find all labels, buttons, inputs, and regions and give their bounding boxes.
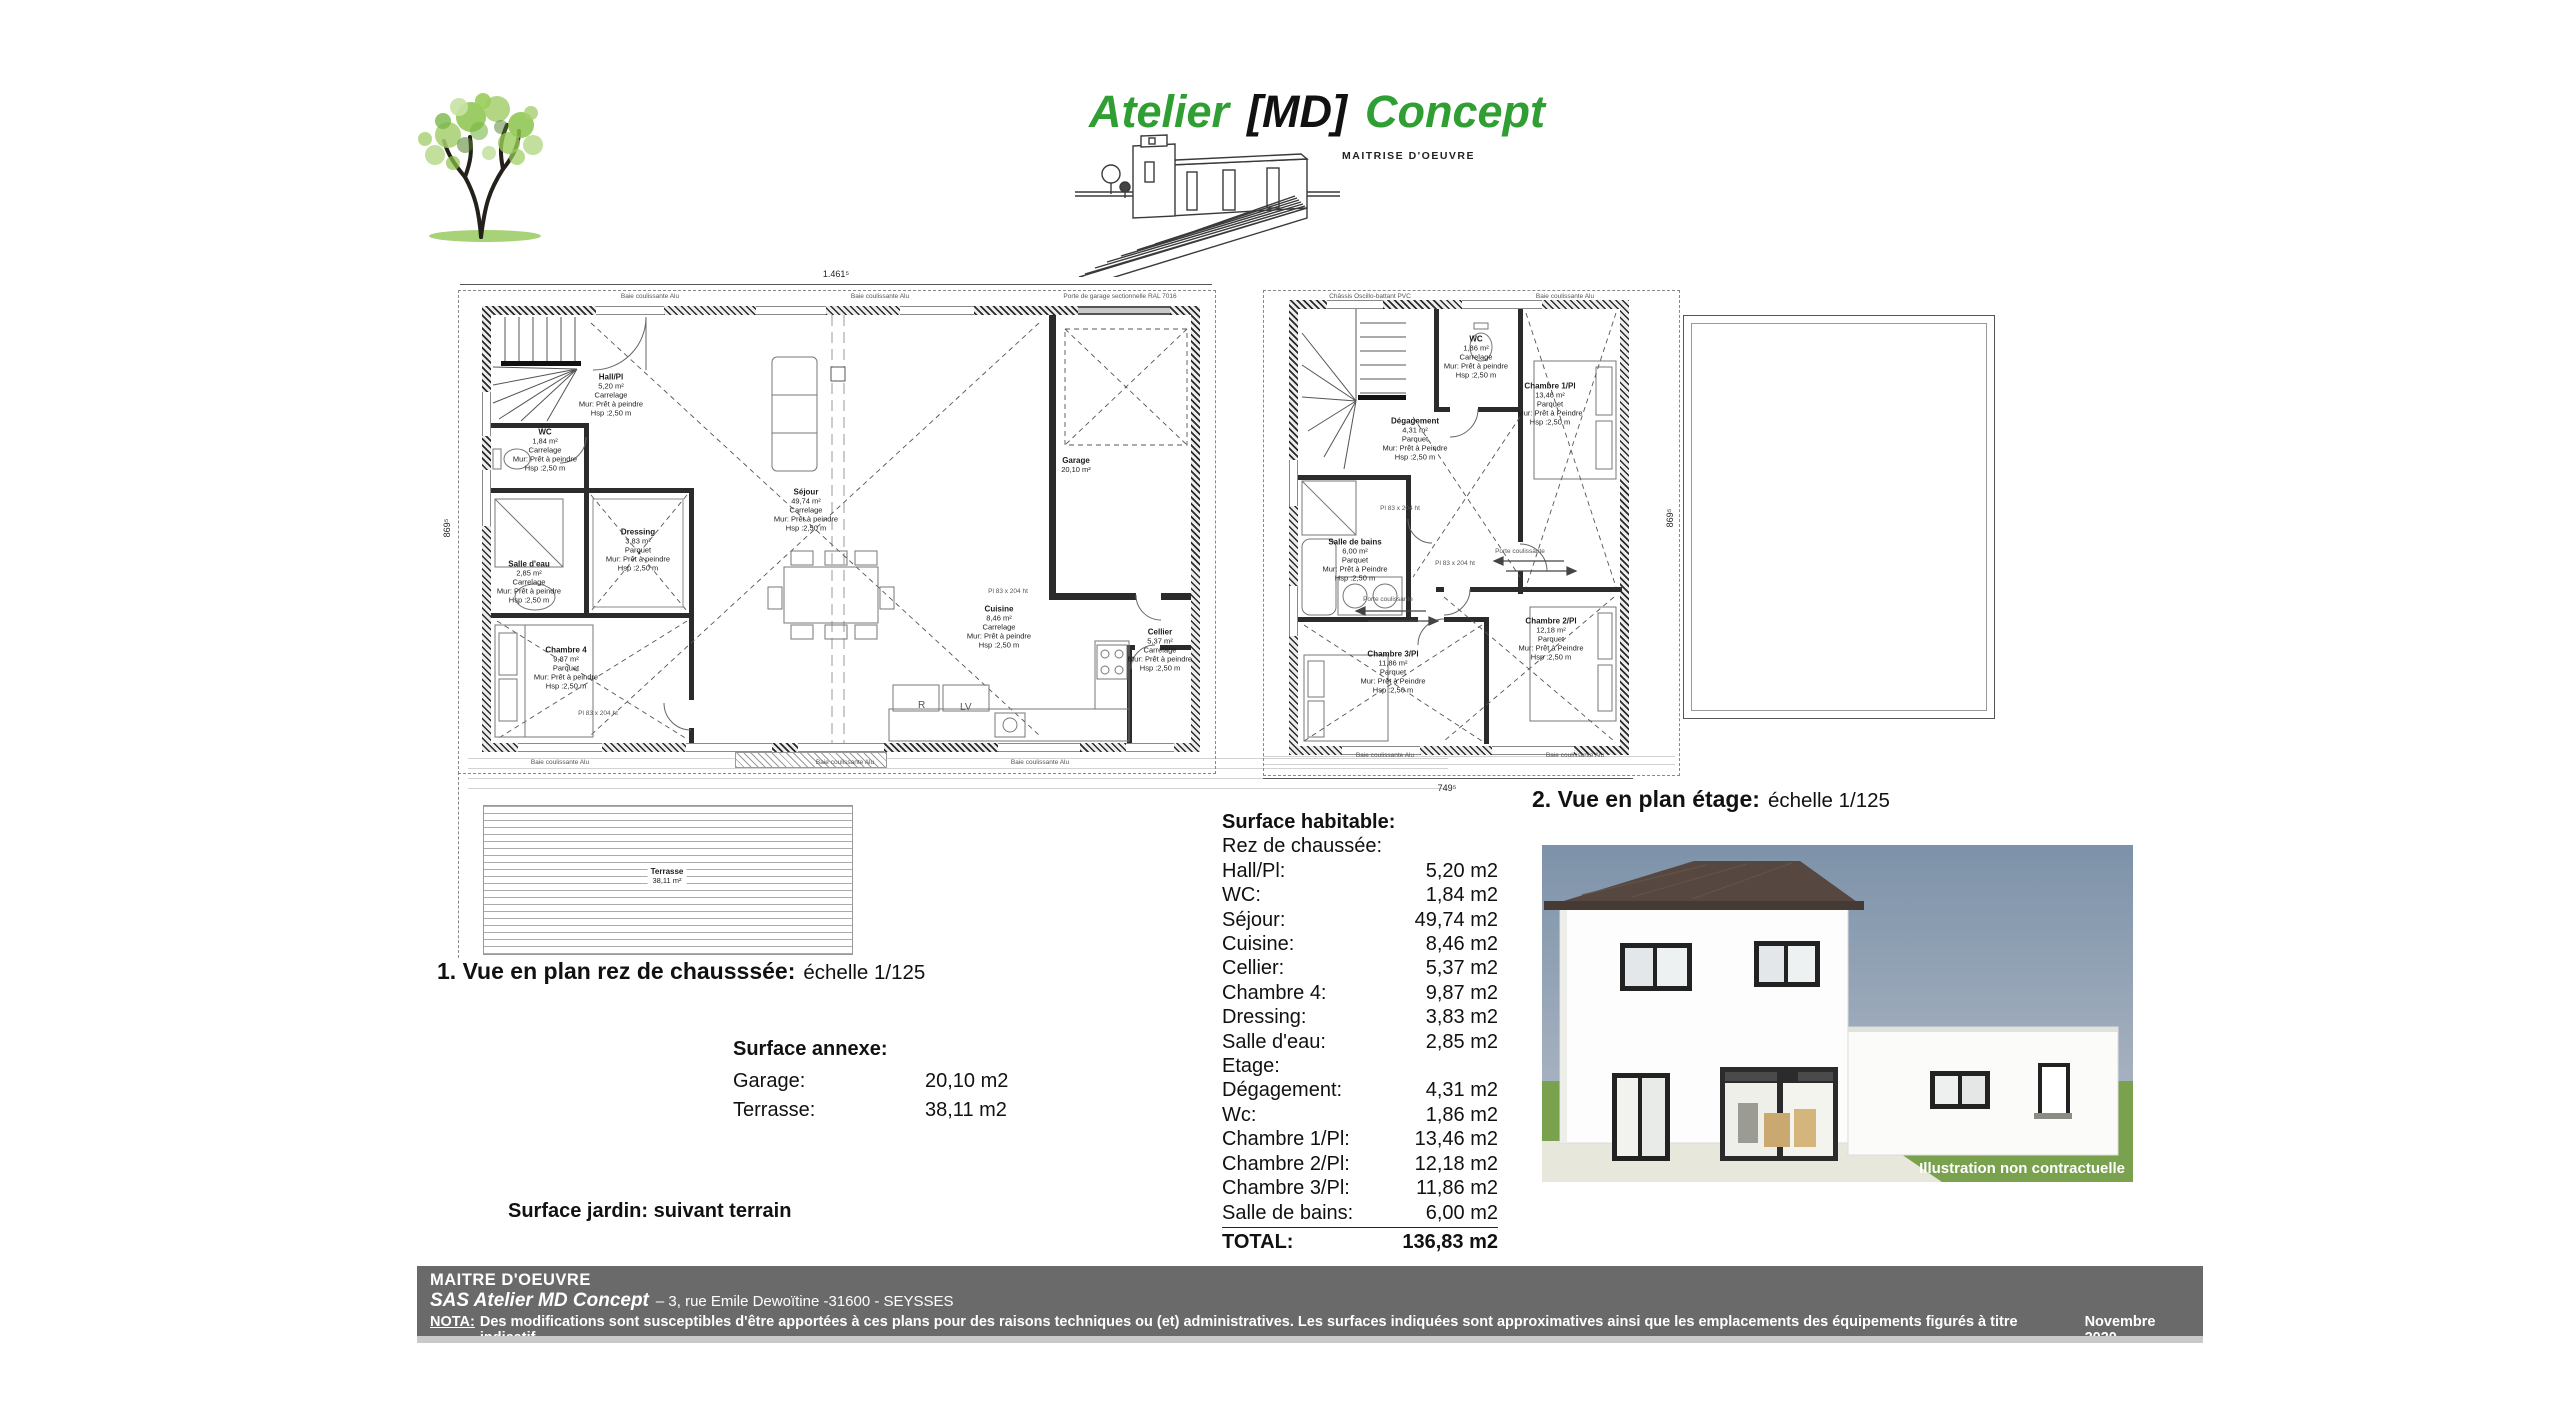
table-row: Chambre 1/Pl:13,46 m2 — [1222, 1127, 1498, 1151]
plan1-window — [998, 743, 1080, 752]
illustration-caption: Illustration non contractuelle — [1919, 1160, 2125, 1177]
room-area: 6,00 m² — [1322, 547, 1387, 556]
room-name: WC — [1444, 335, 1508, 344]
plan2-note-window-top: Baie coulissante Alu — [1536, 293, 1594, 300]
surface-annexe-title: Surface annexe: — [733, 1035, 1008, 1064]
room-height: Hsp :2,50 m — [1128, 664, 1192, 673]
plan1-scale: échelle 1/125 — [803, 961, 925, 984]
room-wall: Mur: Prêt à peindre — [967, 632, 1031, 641]
plan2-window-left — [1289, 586, 1298, 636]
room-wall: Mur: Prêt à Peindre — [1322, 565, 1387, 574]
room-height: Hsp :2,50 m — [1322, 574, 1387, 583]
plan2-roof-below — [1683, 315, 1995, 719]
room-label-chambre4: Chambre 4 9,87 m² Parquet Mur: Prêt à pe… — [534, 646, 598, 691]
room-area: 5,20 m² — [579, 382, 643, 391]
room-name: Garage — [1061, 456, 1091, 465]
row-value: 13,46 m2 — [1415, 1127, 1498, 1151]
plan1-window — [798, 743, 884, 752]
row-value: 11,86 m2 — [1416, 1176, 1498, 1200]
room-label-chambre1: Chambre 1/Pl 13,46 m² Parquet Mur: Prêt … — [1517, 382, 1582, 427]
table-row: Salle d'eau:2,85 m2 — [1222, 1030, 1498, 1054]
room-label-degagement: Dégagement 4,31 m² Parquet Mur: Prêt à P… — [1382, 417, 1447, 462]
room-area: 3,83 m² — [606, 537, 670, 546]
table-row: Hall/Pl:5,20 m2 — [1222, 859, 1498, 883]
row-label: Cellier: — [1222, 956, 1284, 980]
room-area: 38,11 m² — [651, 876, 684, 885]
plan2-dim-right: 869⁵ — [1665, 509, 1675, 528]
row-label: Chambre 4: — [1222, 981, 1327, 1005]
room-area: 9,87 m² — [534, 655, 598, 664]
dining-table — [784, 567, 878, 623]
terrace-label: Terrasse 38,11 m² — [648, 866, 687, 886]
plan1-title: 1. Vue en plan rez de chausssée:échelle … — [437, 958, 925, 985]
row-value: 20,10 m2 — [925, 1067, 1008, 1096]
room-wall: Mur: Prêt à peindre — [774, 515, 838, 524]
row-value: 1,86 m2 — [1426, 1103, 1498, 1127]
dishwasher-letter: LV — [960, 702, 972, 713]
room-height: Hsp :2,50 m — [1518, 653, 1583, 662]
plan1-dim-left: 869⁵ — [442, 519, 452, 538]
plan1-window-left — [482, 392, 491, 436]
surface-jardin-note: Surface jardin: suivant terrain — [508, 1200, 791, 1223]
plan2-dim-bottom: 749⁵ — [1438, 783, 1457, 793]
room-label-cellier: Cellier 5,37 m² Carrelage Mur: Prêt à pe… — [1128, 628, 1192, 673]
room-label-hall: Hall/Pl 5,20 m² Carrelage Mur: Prêt à pe… — [579, 373, 643, 418]
room-wall: Mur: Prêt à Peindre — [1360, 677, 1425, 686]
footer-company-line: SAS Atelier MD Concept– 3, rue Emile Dew… — [430, 1290, 2190, 1312]
room-name: Chambre 4 — [534, 646, 598, 655]
table-row: Dégagement:4,31 m2 — [1222, 1078, 1498, 1102]
room-floor: Parquet — [1360, 668, 1425, 677]
plan1-note-window-top2: Baie coulissante Alu — [851, 293, 909, 300]
plan2-door-note: Pl 83 x 204 ht — [1380, 505, 1420, 512]
room-floor: Carrelage — [497, 578, 561, 587]
room-height: Hsp :2,50 m — [606, 564, 670, 573]
row-label: Wc: — [1222, 1103, 1256, 1127]
brand-word-atelier: Atelier — [1089, 86, 1229, 138]
room-wall: Mur: Prêt à peindre — [513, 455, 577, 464]
plan2-scale: échelle 1/125 — [1768, 789, 1890, 812]
room-label-dressing: Dressing 3,83 m² Parquet Mur: Prêt à pei… — [606, 528, 670, 573]
row-value: 3,83 m2 — [1426, 1005, 1498, 1029]
room-area: 13,46 m² — [1517, 391, 1582, 400]
room-area: 11,86 m² — [1360, 659, 1425, 668]
room-floor: Carrelage — [579, 391, 643, 400]
room-area: 5,37 m² — [1128, 637, 1192, 646]
brand-subtitle: MAITRISE D'OEUVRE — [1342, 150, 1475, 162]
row-label: Garage: — [733, 1067, 925, 1096]
room-name: WC — [513, 428, 577, 437]
plan1-back-door — [1126, 743, 1174, 752]
plan1-outline-extension — [458, 772, 459, 958]
plan1-dim-top: 1.461⁵ — [823, 269, 849, 279]
plan1-window — [900, 306, 974, 315]
room-wall: Mur: Prêt à Peindre — [1517, 409, 1582, 418]
room-floor: Parquet — [1322, 556, 1387, 565]
row-value: 6,00 m2 — [1426, 1201, 1498, 1225]
cooktop — [1097, 645, 1127, 679]
room-label-salle-de-bains: Salle de bains 6,00 m² Parquet Mur: Prêt… — [1322, 538, 1387, 583]
fridge-letter: R — [918, 700, 925, 711]
plan1-window — [686, 743, 772, 752]
row-value: 49,74 m2 — [1415, 908, 1498, 932]
room-wall: Mur: Prêt à peindre — [1128, 655, 1192, 664]
room-height: Hsp :2,50 m — [513, 464, 577, 473]
row-value: 2,85 m2 — [1426, 1030, 1498, 1054]
house-3d-illustration: Illustration non contractuelle — [1542, 845, 2133, 1182]
footer-shadow-strip — [417, 1336, 2203, 1343]
room-height: Hsp :2,50 m — [967, 641, 1031, 650]
plan1-window — [756, 306, 826, 315]
plan1-window — [518, 743, 602, 752]
room-wall: Mur: Prêt à Peindre — [1382, 444, 1447, 453]
row-value: 38,11 m2 — [925, 1096, 1007, 1125]
room-height: Hsp :2,50 m — [1360, 686, 1425, 695]
table-row: Chambre 3/Pl:11,86 m2 — [1222, 1176, 1498, 1200]
plan2-window — [1327, 300, 1383, 309]
row-label: WC: — [1222, 883, 1261, 907]
row-value: 1,84 m2 — [1426, 883, 1498, 907]
total-value: 136,83 m2 — [1402, 1230, 1498, 1254]
room-wall: Mur: Prêt à peindre — [606, 555, 670, 564]
room-area: 20,10 m² — [1061, 465, 1091, 474]
plan2-note-window-bottom2: Baie coulissante Alu — [1546, 752, 1604, 759]
plan2-title: 2. Vue en plan étage:échelle 1/125 — [1532, 786, 1890, 813]
sofa — [772, 357, 817, 471]
roof-fascia — [1544, 901, 1864, 910]
annotation-line — [468, 788, 1448, 789]
plan2-note-window-bottom: Baie coulissante Alu — [1356, 752, 1414, 759]
plan1-garage-door — [1078, 306, 1170, 315]
table-row: Chambre 4:9,87 m2 — [1222, 981, 1498, 1005]
room-floor: Parquet — [1517, 400, 1582, 409]
room-height: Hsp :2,50 m — [1382, 453, 1447, 462]
table-row: Chambre 2/Pl:12,18 m2 — [1222, 1152, 1498, 1176]
room-floor: Parquet — [534, 664, 598, 673]
room-name: Dressing — [606, 528, 670, 537]
room-floor: Carrelage — [1444, 353, 1508, 362]
brand-house-sketch — [1075, 132, 1340, 277]
house-shade — [1560, 905, 1567, 1143]
room-name: Dégagement — [1382, 417, 1447, 426]
kitchen-counter — [889, 709, 1129, 741]
row-value: 5,37 m2 — [1426, 956, 1498, 980]
room-area: 8,46 m² — [967, 614, 1031, 623]
ground-floor-openings — [1612, 1067, 1838, 1161]
room-floor: Carrelage — [774, 506, 838, 515]
room-label-chambre3: Chambre 3/Pl 11,86 m² Parquet Mur: Prêt … — [1360, 650, 1425, 695]
plan1-note-window-bottom: Baie coulissante Alu — [531, 759, 589, 766]
plan1-door-note: Pl 83 x 204 ht — [988, 588, 1028, 595]
footer-title-block: MAITRE D'OEUVRE SAS Atelier MD Concept– … — [417, 1266, 2203, 1336]
table-total-row: TOTAL:136,83 m2 — [1222, 1227, 1498, 1254]
room-wall: Mur: Prêt à peindre — [579, 400, 643, 409]
room-name: Chambre 1/Pl — [1517, 382, 1582, 391]
footer-role: MAITRE D'OEUVRE — [430, 1271, 2190, 1290]
brand-word-md: [MD] — [1247, 86, 1347, 138]
row-label: Dégagement: — [1222, 1078, 1342, 1102]
room-name: Terrasse — [651, 867, 684, 876]
room-area: 1,86 m² — [1444, 344, 1508, 353]
room-floor: Parquet — [1518, 635, 1583, 644]
room-label-cuisine: Cuisine 8,46 m² Carrelage Mur: Prêt à pe… — [967, 605, 1031, 650]
plan1-note-window-bottom2: Baie coulissante Alu — [816, 759, 874, 766]
plan1-note-window-top: Baie coulissante Alu — [621, 293, 679, 300]
room-height: Hsp :2,50 m — [1517, 418, 1582, 427]
room-floor: Carrelage — [513, 446, 577, 455]
plan1-note-garage-door: Porte de garage sectionnelle RAL 7016 — [1063, 293, 1176, 300]
room-floor: Parquet — [1382, 435, 1447, 444]
room-name: Cuisine — [967, 605, 1031, 614]
room-wall: Mur: Prêt à peindre — [534, 673, 598, 682]
total-label: TOTAL: — [1222, 1230, 1293, 1254]
plan1-window — [596, 306, 664, 315]
table-row: Dressing:3,83 m2 — [1222, 1005, 1498, 1029]
row-label: Chambre 2/Pl: — [1222, 1152, 1350, 1176]
room-floor: Carrelage — [967, 623, 1031, 632]
plan2-note-chassis: Châssis Oscillo-battant PVC — [1329, 293, 1411, 300]
room-area: 49,74 m² — [774, 497, 838, 506]
room-floor: Carrelage — [1128, 646, 1192, 655]
surface-habitable-title: Surface habitable: — [1222, 810, 1498, 834]
room-label-salle-eau: Salle d'eau 2,85 m² Carrelage Mur: Prêt … — [497, 560, 561, 605]
row-label: Terrasse: — [733, 1096, 925, 1125]
room-wall: Mur: Prêt à peindre — [497, 587, 561, 596]
table-row: Séjour:49,74 m2 — [1222, 908, 1498, 932]
table-row: Cellier:5,37 m2 — [1222, 956, 1498, 980]
room-name: Cellier — [1128, 628, 1192, 637]
room-floor: Parquet — [606, 546, 670, 555]
room-name: Salle d'eau — [497, 560, 561, 569]
plan2-sliding-note2: Porte coulissante — [1495, 548, 1545, 555]
row-value: 9,87 m2 — [1426, 981, 1498, 1005]
etage-section-label: Etage: — [1222, 1054, 1498, 1078]
plan2-window-left — [1289, 460, 1298, 506]
table-row: Salle de bains:6,00 m2 — [1222, 1201, 1498, 1225]
footer-address: – 3, rue Emile Dewoïtine -31600 - SEYSSE… — [656, 1293, 954, 1310]
room-label-wc-etage: WC 1,86 m² Carrelage Mur: Prêt à peindre… — [1444, 335, 1508, 380]
plan2-door-note2: Pl 83 x 204 ht — [1435, 560, 1475, 567]
rdc-section-label: Rez de chaussée: — [1222, 834, 1498, 858]
row-label: Chambre 3/Pl: — [1222, 1176, 1350, 1200]
room-height: Hsp :2,50 m — [774, 524, 838, 533]
plan2-window — [1462, 300, 1542, 309]
room-area: 4,31 m² — [1382, 426, 1447, 435]
table-row: Wc:1,86 m2 — [1222, 1103, 1498, 1127]
tree-logo — [413, 83, 563, 251]
room-height: Hsp :2,50 m — [534, 682, 598, 691]
room-height: Hsp :2,50 m — [497, 596, 561, 605]
room-name: Hall/Pl — [579, 373, 643, 382]
row-value: 12,18 m2 — [1415, 1152, 1498, 1176]
row-label: Séjour: — [1222, 908, 1285, 932]
room-area: 2,85 m² — [497, 569, 561, 578]
room-name: Chambre 3/Pl — [1360, 650, 1425, 659]
room-label-sejour: Séjour 49,74 m² Carrelage Mur: Prêt à pe… — [774, 488, 838, 533]
surface-habitable-table: Surface habitable: Rez de chaussée: Hall… — [1222, 810, 1498, 1254]
room-height: Hsp :2,50 m — [579, 409, 643, 418]
table-row: Terrasse:38,11 m2 — [733, 1096, 1008, 1125]
room-name: Chambre 2/Pl — [1518, 617, 1583, 626]
row-value: 4,31 m2 — [1426, 1078, 1498, 1102]
row-label: Chambre 1/Pl: — [1222, 1127, 1350, 1151]
room-name: Séjour — [774, 488, 838, 497]
wing-roof-edge — [1848, 1027, 2118, 1032]
room-label-garage: Garage 20,10 m² — [1061, 456, 1091, 474]
row-label: Salle de bains: — [1222, 1201, 1353, 1225]
room-height: Hsp :2,50 m — [1444, 371, 1508, 380]
footer-company: SAS Atelier MD Concept — [430, 1290, 649, 1311]
row-label: Cuisine: — [1222, 932, 1294, 956]
table-row: WC:1,84 m2 — [1222, 883, 1498, 907]
plan2-title-text: 2. Vue en plan étage: — [1532, 786, 1760, 812]
room-wall: Mur: Prêt à Peindre — [1518, 644, 1583, 653]
tree-ground — [429, 230, 541, 242]
brand-title: Atelier[MD]Concept — [1080, 86, 1530, 138]
room-label-wc: WC 1,84 m² Carrelage Mur: Prêt à peindre… — [513, 428, 577, 473]
plan1-dim-line-top — [460, 284, 1212, 285]
plan1-note-window-bottom3: Baie coulissante Alu — [1011, 759, 1069, 766]
row-value: 8,46 m2 — [1426, 932, 1498, 956]
surface-annexe-table: Surface annexe: Garage:20,10 m2 Terrasse… — [733, 1035, 1008, 1125]
plan2-sliding-note: Porte coulissante — [1363, 596, 1413, 603]
row-value: 5,20 m2 — [1426, 859, 1498, 883]
room-wall: Mur: Prêt à peindre — [1444, 362, 1508, 371]
plan2-dim-line-bottom — [1263, 778, 1633, 779]
brand-word-concept: Concept — [1365, 86, 1545, 138]
plan2-roof-parapet — [1691, 323, 1987, 711]
table-row: Cuisine:8,46 m2 — [1222, 932, 1498, 956]
room-name: Salle de bains — [1322, 538, 1387, 547]
table-row: Garage:20,10 m2 — [733, 1067, 1008, 1096]
row-label: Salle d'eau: — [1222, 1030, 1326, 1054]
plan1-door-note2: Pl 83 x 204 ht — [578, 710, 618, 717]
room-area: 1,84 m² — [513, 437, 577, 446]
row-label: Dressing: — [1222, 1005, 1306, 1029]
room-area: 12,18 m² — [1518, 626, 1583, 635]
stairs — [493, 317, 581, 421]
tree-foliage — [418, 93, 543, 170]
room-label-chambre2: Chambre 2/Pl 12,18 m² Parquet Mur: Prêt … — [1518, 617, 1583, 662]
plan1-window-left — [482, 470, 491, 526]
plan1-title-text: 1. Vue en plan rez de chausssée: — [437, 958, 795, 984]
door-arcs — [560, 317, 1161, 730]
row-label: Hall/Pl: — [1222, 859, 1285, 883]
